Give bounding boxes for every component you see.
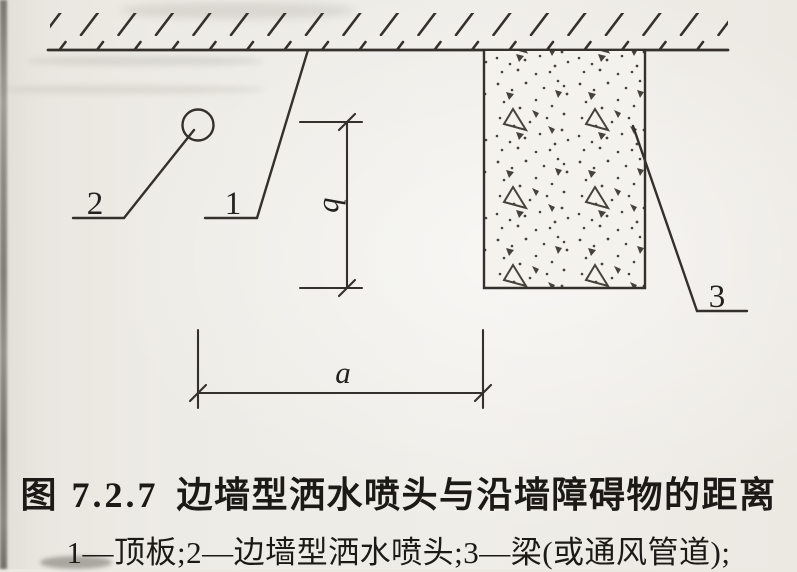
dimension-b-label: b (317, 197, 352, 213)
figure-number: 图 7.2.7 (20, 475, 158, 515)
leader-line-3 (633, 126, 747, 311)
leader-line-1 (205, 50, 308, 218)
figure-diagram: 2 1 3 a b (0, 0, 797, 460)
beam-texture (484, 51, 645, 288)
callout-1-leader (205, 50, 308, 218)
figure-caption: 图 7.2.7边墙型洒水喷头与沿墙障碍物的距离 (0, 466, 797, 518)
callout-2-label: 2 (87, 186, 104, 222)
ceiling-hatch (50, 13, 728, 50)
dimension-a-label: a (335, 355, 351, 390)
figure-title: 边墙型洒水喷头与沿墙障碍物的距离 (177, 475, 777, 515)
ceiling (48, 13, 728, 50)
beam (484, 51, 645, 288)
callout-1-label: 1 (225, 186, 242, 222)
sprinkler-head-circle (183, 110, 214, 141)
callout-3-leader (633, 126, 747, 311)
callout-3-label: 3 (709, 279, 726, 315)
figure-legend: 1—顶板;2—边墙型洒水喷头;3—梁(或通风管道); (0, 527, 797, 572)
